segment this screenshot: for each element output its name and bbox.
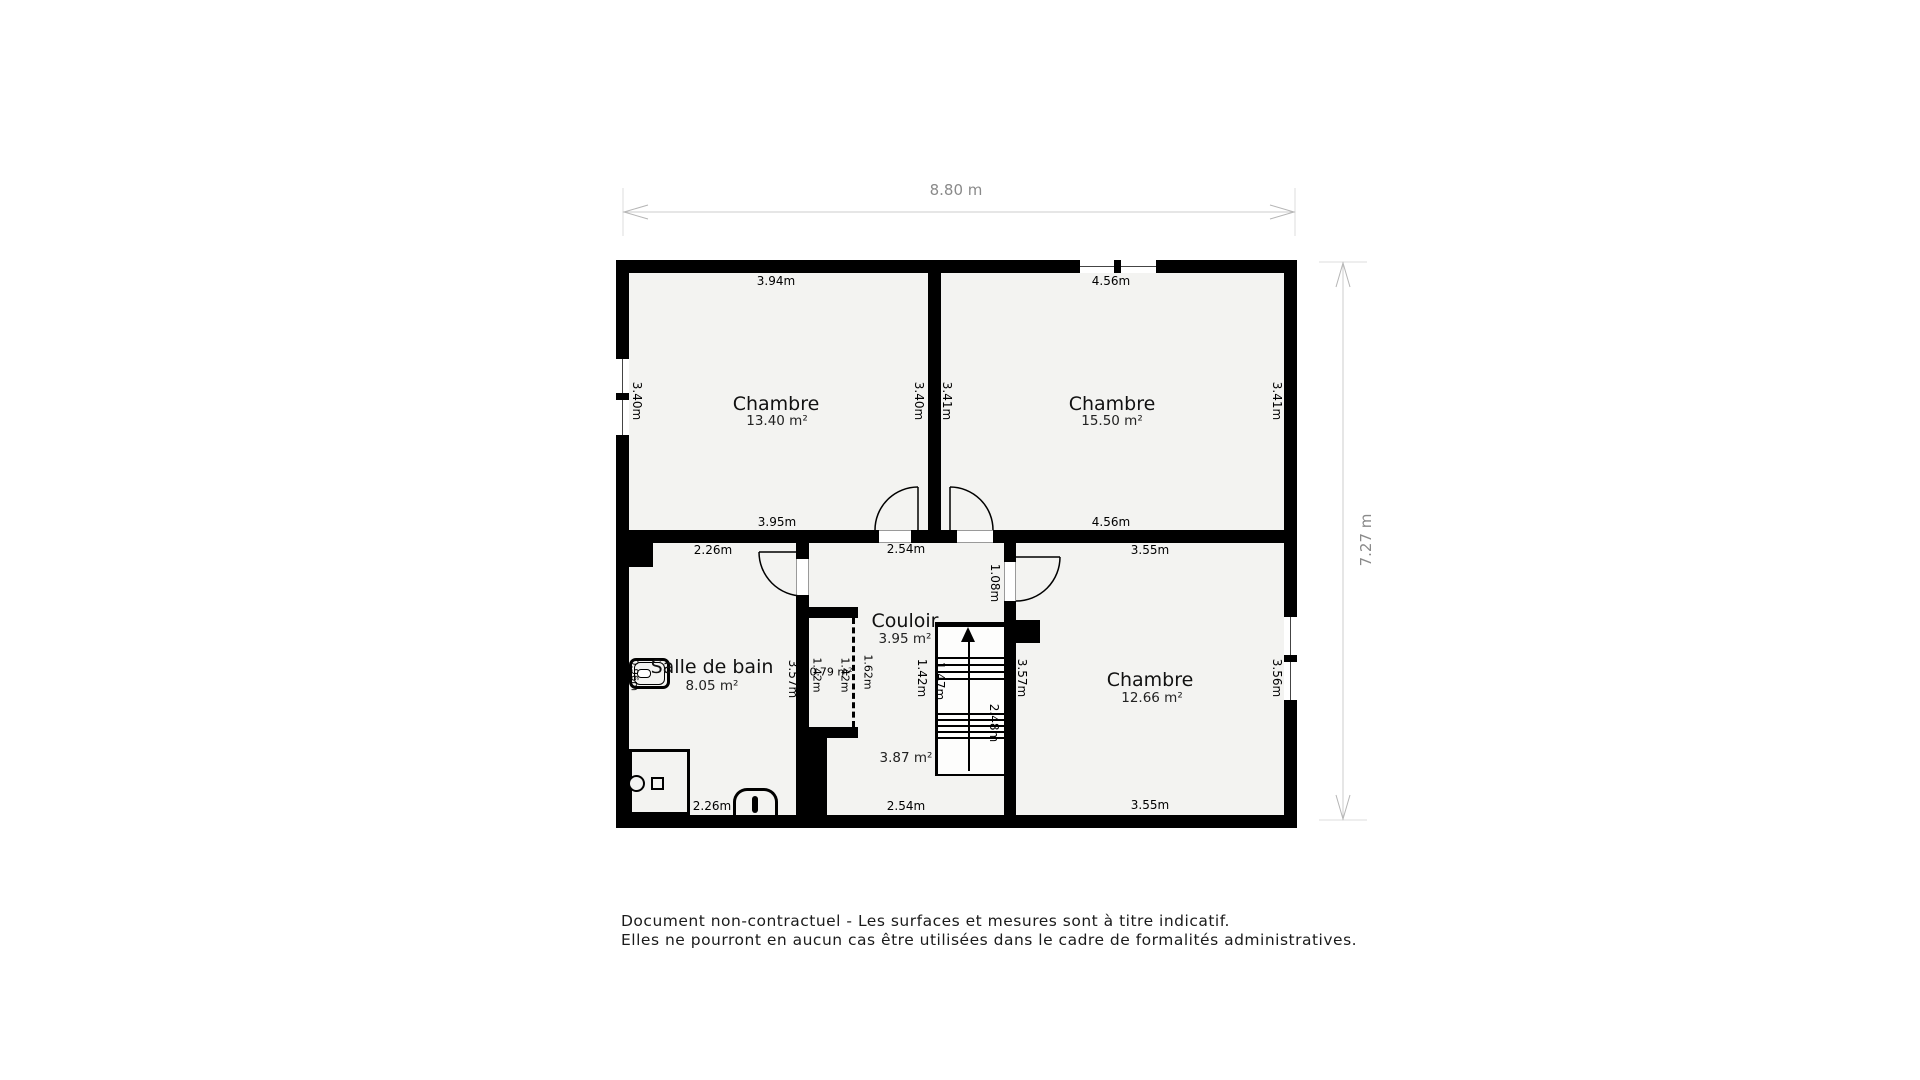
wall-bathroom-right-upper [796, 543, 809, 552]
wall-middle-left [629, 530, 872, 543]
window-cap [1156, 260, 1163, 273]
stair-tread [938, 678, 1004, 680]
room-name-hallway: Couloir [872, 610, 939, 632]
dim-label: 2.54m [887, 542, 925, 556]
wall-hallway-right-upper [1004, 543, 1016, 555]
door-jamb [796, 552, 809, 559]
chimney-block [1016, 620, 1040, 643]
door-jamb [796, 595, 809, 602]
stair-tread [938, 657, 1004, 659]
dim-label: 3.41m [1270, 382, 1284, 420]
room-area: 8.05 m² [686, 678, 739, 694]
stair-up-arrow-icon [961, 627, 975, 642]
stair-direction-line [968, 637, 970, 771]
room-area: 3.95 m² [879, 631, 932, 647]
dim-label: 4.56m [1092, 515, 1130, 529]
closet-bottom-wall [809, 727, 858, 738]
closet-top-wall [809, 607, 858, 618]
dim-label: 3.40m [912, 382, 926, 420]
dim-label: 2.54m [887, 799, 925, 813]
dim-label: 2.48m [987, 704, 1001, 742]
stair-area-label: 3.87 m² [880, 750, 933, 766]
window-top [1073, 260, 1163, 273]
dim-label: 1.42m [811, 657, 824, 692]
door-jamb [950, 530, 957, 543]
floorplan: 3.94m 3.40m 3.40m Chambre 13.40 m² 3.95m… [616, 260, 1297, 828]
floorplan-page: 8.80 m 7.27 m [0, 0, 1920, 1080]
wall-bathroom-thick-block [796, 738, 827, 815]
wall-hallway-right-lower [1004, 608, 1016, 815]
window-cap [1073, 260, 1080, 273]
window-left [616, 352, 629, 442]
window-right [1284, 610, 1297, 707]
bathroom-corner-block [629, 543, 653, 567]
window-cap [1114, 260, 1121, 273]
dim-label: 3.55m [1131, 798, 1169, 812]
dim-label: 3.56m [1270, 659, 1284, 697]
dim-label: 3.95m [758, 515, 796, 529]
window-cap [616, 393, 629, 400]
disclaimer: Document non-contractuel - Les surfaces … [621, 912, 1357, 949]
dim-label: 1.42m [915, 659, 929, 697]
disclaimer-line-2: Elles ne pourront en aucun cas être util… [621, 931, 1357, 950]
window-cap [1284, 655, 1297, 662]
door-jamb [1004, 601, 1016, 608]
window-cap [1284, 700, 1297, 707]
dim-label: 0.96m [629, 659, 640, 691]
room-name-bedroom-top-right: Chambre [1069, 393, 1156, 415]
disclaimer-line-1: Document non-contractuel - Les surfaces … [621, 912, 1357, 931]
dim-label: 3.94m [757, 274, 795, 288]
dim-label: 3.40m [630, 382, 644, 420]
toilet-cistern [752, 796, 758, 813]
dim-label: 1.62m [862, 654, 875, 689]
door-jamb [993, 530, 1000, 543]
dim-label: 3.57m [1015, 659, 1029, 697]
dim-label: 3.41m [940, 382, 954, 420]
room-area: 13.40 m² [746, 413, 808, 429]
sink-icon [628, 775, 645, 792]
room-name-bedroom-bottom-right: Chambre [1107, 669, 1194, 691]
counter-fixture [651, 777, 664, 790]
stair-tread [938, 664, 1004, 666]
room-area: 12.66 m² [1121, 690, 1183, 706]
dim-label: 3.55m [1131, 543, 1169, 557]
room-name-bathroom: Salle de bain [651, 656, 774, 678]
window-cap [1284, 610, 1297, 617]
overall-width-label: 8.80 m [930, 181, 983, 199]
stair-tread [938, 671, 1004, 673]
room-name-bedroom-top-left: Chambre [733, 393, 820, 415]
dim-label: 2.26m [694, 543, 732, 557]
dim-label: 4.56m [1092, 274, 1130, 288]
window-cap [616, 435, 629, 442]
room-area: 15.50 m² [1081, 413, 1143, 429]
wall-middle-right [1000, 530, 1284, 543]
dim-label: 1.47m [933, 662, 947, 700]
dim-label: 1.42m [839, 657, 852, 692]
overall-height-label: 7.27 m [1357, 514, 1375, 567]
window-cap [616, 352, 629, 359]
door-jamb [872, 530, 879, 543]
dim-label: 2.26m [693, 799, 731, 813]
dim-label: 3.57m [786, 660, 800, 698]
door-jamb [1004, 555, 1016, 562]
dim-label: 1.08m [988, 564, 1002, 602]
